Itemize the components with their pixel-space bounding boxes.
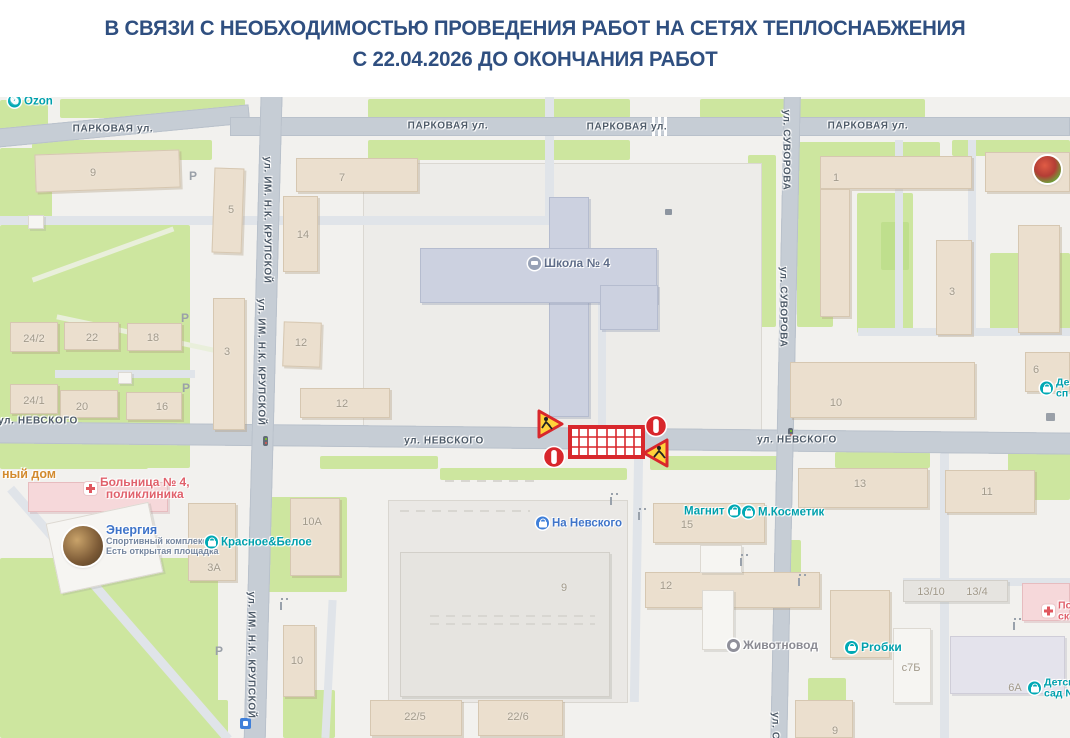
streetlamp-icon [610, 497, 612, 505]
poi-label-line2: ск [1058, 611, 1070, 622]
poi-zhivotnovod[interactable]: Животновод [727, 638, 818, 652]
building [34, 149, 180, 192]
no-entry-icon [646, 416, 667, 437]
building-number: 20 [76, 401, 88, 413]
building-number: 24/2 [23, 333, 44, 345]
building [118, 372, 132, 384]
cafe-photo-marker[interactable] [1034, 156, 1061, 183]
building-number: 3 [949, 286, 955, 298]
map[interactable]: ПАРКОВАЯ ул. ПАРКОВАЯ ул. ПАРКОВАЯ ул. П… [0, 97, 1070, 738]
poi-label-line1: По [1058, 601, 1070, 612]
building [296, 158, 418, 192]
building-number: 9 [832, 725, 838, 737]
traffic-light-icon [263, 436, 268, 446]
parking-label: Р [215, 644, 223, 658]
building [28, 215, 44, 229]
building-number: 22/5 [404, 711, 425, 723]
building [820, 156, 972, 189]
green-area [368, 99, 630, 118]
building-number: 3А [207, 562, 220, 574]
streetlamp-icon [740, 558, 742, 566]
school-icon [528, 257, 541, 270]
streetlamp-icon [798, 578, 800, 586]
poi-detsky-sad[interactable]: Детск сад N [1028, 678, 1070, 699]
poi-subtitle-2: Есть открытая площадка [106, 547, 218, 557]
energia-photo-marker[interactable] [63, 526, 103, 566]
poi-label: Магнит [684, 505, 725, 517]
building-number: 10А [302, 516, 322, 528]
playground-icon [1046, 413, 1055, 421]
poi-school-4[interactable]: Школа № 4 [528, 256, 610, 270]
building [820, 189, 850, 317]
building-number: 3 [224, 346, 230, 358]
poi-ozon[interactable]: Ozon [8, 97, 53, 108]
building-number: 13/10 [917, 586, 945, 598]
green-area [700, 99, 925, 118]
no-entry-icon [544, 447, 565, 468]
poi-clinic-right-edge[interactable]: По ск [1042, 601, 1070, 622]
street-label-nevskogo: ул. НЕВСКОГО [757, 435, 837, 446]
street-label-parkovaya: ПАРКОВАЯ ул. [587, 122, 668, 133]
building-number: 9 [90, 167, 96, 179]
building-number: 6А [1008, 682, 1021, 694]
building-number: 12 [660, 580, 672, 592]
building [795, 700, 853, 738]
streetlamp-icon [280, 602, 282, 610]
poi-krasnoe-beloe[interactable]: Красное&Белое [205, 536, 312, 549]
poi-label: На Невского [552, 517, 622, 529]
streetlamp-icon [1013, 622, 1015, 630]
building [700, 545, 742, 573]
building-number: 11 [981, 486, 992, 498]
poi-magnit[interactable]: Магнит [684, 505, 741, 518]
street-label-krupskoy: ул. ИМ. Н.К. КРУПСКОЙ [256, 298, 267, 425]
street-label-suvorova: ул. СУВОРОВА [778, 267, 789, 348]
header-line-1: В СВЯЗИ С НЕОБХОДИМОСТЬЮ ПРОВЕДЕНИЯ РАБО… [16, 13, 1054, 44]
building-number: 22 [86, 332, 98, 344]
poi-probki[interactable]: Рrобки [845, 640, 902, 654]
roadworks-warning-icon [644, 440, 667, 466]
school-building [600, 285, 658, 330]
poi-label-line2: поликлиника [100, 488, 190, 500]
street-label-suvorova: ул. СУВОРОВА [781, 110, 792, 191]
poi-label: Рrобки [861, 640, 902, 654]
barrier-fence-icon [570, 427, 643, 457]
streetlamp-icon [638, 512, 640, 520]
poi-label-line1: Детск [1044, 678, 1070, 689]
street-label-parkovaya: ПАРКОВАЯ ул. [73, 124, 154, 135]
parking-dashes [400, 510, 530, 512]
poi-na-nevskogo[interactable]: На Невского [536, 517, 622, 530]
parking-label: Р [182, 381, 190, 395]
building-number: 13/4 [966, 586, 987, 598]
building [126, 392, 182, 420]
poi-label: М.Косметик [758, 506, 824, 518]
shop-bag-icon [742, 506, 755, 519]
building [790, 362, 975, 418]
building-number: 12 [336, 398, 348, 410]
ozon-icon [8, 97, 21, 108]
gate-icon [665, 209, 672, 215]
poi-label: Животновод [743, 638, 818, 652]
shop-bag-icon [536, 517, 549, 530]
building-number: 18 [147, 332, 159, 344]
green-area [368, 140, 630, 160]
building-number: 16 [156, 401, 168, 413]
parking-label: Р [189, 169, 197, 183]
hospital-cross-icon [84, 482, 97, 495]
parking-dashes [430, 615, 595, 617]
building-number: 1 [833, 172, 839, 184]
shop-bag-icon [845, 641, 858, 654]
poi-energia[interactable]: Энергия Спортивный комплекс Есть открыта… [106, 524, 218, 556]
hospital-cross-icon [1042, 605, 1055, 618]
building-number: 13 [854, 478, 866, 490]
building-number: 9 [561, 582, 567, 594]
building-number: 7 [339, 172, 345, 184]
ring-icon [727, 639, 740, 652]
building-number: 5 [228, 204, 234, 216]
green-area [440, 468, 627, 480]
parking-dashes [430, 623, 595, 625]
poi-sport-right-edge[interactable]: Де сп [1040, 378, 1069, 399]
street-label-suvorova: ул. Су [770, 712, 781, 738]
shop-bag-icon [205, 536, 218, 549]
street-label-nevskogo: ул. НЕВСКОГО [0, 416, 78, 427]
shop-bag-icon [728, 505, 741, 518]
building-number: 24/1 [23, 395, 44, 407]
building [1018, 225, 1060, 333]
header-line-2: С 22.04.2026 ДО ОКОНЧАНИЯ РАБОТ [16, 44, 1054, 75]
poi-label: ный дом [2, 467, 56, 481]
poi-label: Ozon [24, 97, 53, 107]
kindergarten-icon [1028, 682, 1041, 695]
poi-dom-left-edge[interactable]: ный дом [2, 467, 56, 481]
street-label-nevskogo: ул. НЕВСКОГО [404, 436, 484, 447]
announcement-page: В СВЯЗИ С НЕОБХОДИМОСТЬЮ ПРОВЕДЕНИЯ РАБО… [0, 0, 1070, 738]
green-area [835, 452, 930, 468]
bus-stop-icon [240, 718, 251, 729]
building [60, 390, 118, 418]
building-number: 6 [1033, 364, 1039, 376]
shop-bag-icon [1040, 382, 1053, 395]
poi-label-line2: сад N [1044, 688, 1070, 699]
building-number: 10 [830, 397, 842, 409]
street-label-krupskoy: ул. ИМ. Н.К. КРУПСКОЙ [246, 591, 257, 718]
poi-label: Школа № 4 [544, 256, 610, 270]
poi-hospital-4[interactable]: Больница № 4, поликлиника [84, 476, 190, 500]
parking-label: Р [181, 311, 189, 325]
building-number: 22/6 [507, 711, 528, 723]
building-number: 10 [291, 655, 303, 667]
poi-label-line1: Де [1056, 378, 1069, 389]
roadworks-warning-icon [539, 411, 562, 437]
street-label-krupskoy: ул. ИМ. Н.К. КРУПСКОЙ [262, 156, 273, 283]
building-number: с7Б [902, 662, 921, 674]
building-number: 14 [297, 229, 309, 241]
building [213, 298, 245, 430]
header: В СВЯЗИ С НЕОБХОДИМОСТЬЮ ПРОВЕДЕНИЯ РАБО… [0, 0, 1070, 97]
street-label-parkovaya: ПАРКОВАЯ ул. [408, 121, 489, 132]
green-area [320, 456, 438, 469]
poi-m-kosmetik[interactable]: М.Косметик [742, 506, 824, 519]
building-number: 12 [295, 337, 307, 349]
parking-dashes [445, 480, 535, 482]
poi-label: Красное&Белое [221, 536, 312, 548]
road-minor [630, 452, 643, 702]
street-label-parkovaya: ПАРКОВАЯ ул. [828, 121, 909, 132]
poi-label-line2: сп [1056, 388, 1069, 399]
road-closure-marker [533, 400, 671, 468]
school-building [549, 197, 589, 417]
building-number: 15 [681, 519, 693, 531]
